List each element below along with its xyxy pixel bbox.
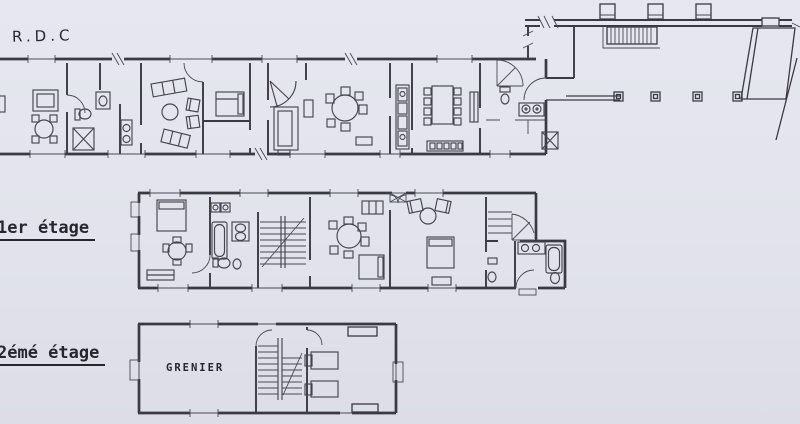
armchair bbox=[186, 115, 200, 129]
ff-windows bbox=[131, 189, 536, 295]
round-table bbox=[337, 224, 361, 248]
cy-colonnade-pillars bbox=[614, 92, 742, 101]
round-table bbox=[168, 242, 186, 260]
gate-pillar bbox=[762, 18, 779, 26]
bidet bbox=[233, 259, 241, 269]
armchair bbox=[186, 98, 200, 112]
hearth bbox=[356, 137, 372, 145]
sofa bbox=[161, 129, 190, 148]
sf-door-arcs bbox=[256, 330, 322, 346]
side-table bbox=[432, 277, 451, 285]
ground-floor-label: R.D.C bbox=[12, 26, 74, 46]
ff-annex-bathroom bbox=[488, 242, 562, 284]
ff-dining-room bbox=[329, 201, 384, 279]
toilet bbox=[551, 273, 560, 284]
dresser bbox=[362, 201, 383, 214]
cy-chimneys bbox=[600, 4, 711, 19]
winder-stair bbox=[488, 212, 534, 240]
toilet bbox=[488, 272, 496, 282]
first-floor-label: 1er étage bbox=[0, 218, 95, 241]
bed bbox=[427, 237, 454, 268]
armchair bbox=[407, 199, 423, 214]
ff-staircase bbox=[260, 216, 306, 268]
sf-staircase bbox=[258, 338, 302, 400]
corner-stair bbox=[270, 81, 296, 107]
gf-dining-room bbox=[326, 87, 372, 145]
gf-hall bbox=[270, 81, 313, 155]
bed bbox=[311, 352, 338, 369]
bed bbox=[157, 200, 186, 231]
second-floor-label: 2émé étage bbox=[0, 343, 105, 366]
sofa bbox=[151, 78, 187, 97]
ff-bedroom-left bbox=[147, 200, 192, 280]
toilet bbox=[501, 94, 509, 104]
ff-sitting-room bbox=[407, 199, 454, 285]
courtyard bbox=[523, 4, 800, 140]
round-table bbox=[162, 104, 178, 120]
first-floor-plan bbox=[131, 189, 565, 295]
gf-living-room bbox=[151, 78, 200, 148]
gf-bathroom bbox=[73, 92, 132, 150]
round-table bbox=[35, 120, 53, 138]
floor-plan-drawing bbox=[0, 0, 800, 424]
cy-ramp bbox=[741, 28, 797, 140]
sinks bbox=[519, 103, 544, 116]
winder-stair bbox=[497, 60, 523, 86]
sf-chimney-breasts bbox=[348, 327, 378, 412]
ff-exterior-walls bbox=[138, 193, 565, 288]
gf-kitchen-strip bbox=[396, 85, 409, 149]
stove bbox=[121, 120, 132, 145]
sf-bedroom bbox=[305, 352, 338, 397]
gf-bedroom-mid bbox=[216, 92, 244, 116]
grenier-room-label: GRENIER bbox=[166, 362, 224, 374]
sink bbox=[99, 96, 107, 106]
long-table bbox=[432, 86, 453, 124]
armchair bbox=[435, 199, 451, 214]
ground-floor-plan bbox=[0, 53, 558, 160]
round-table bbox=[332, 95, 358, 121]
ff-bathroom bbox=[211, 203, 249, 269]
round-table bbox=[420, 208, 436, 224]
gf-bedroom-left bbox=[0, 90, 58, 143]
bed bbox=[311, 381, 338, 397]
scanned-floorplan-page: R.D.C 1er étage 2émé étage GRENIER bbox=[0, 0, 800, 424]
gf-dining-room-2 bbox=[424, 86, 478, 151]
gf-back-hall bbox=[497, 60, 558, 149]
bed bbox=[216, 92, 244, 116]
bed bbox=[359, 255, 384, 279]
cy-stair bbox=[603, 27, 660, 48]
gf-wall-break-marks bbox=[112, 53, 357, 160]
